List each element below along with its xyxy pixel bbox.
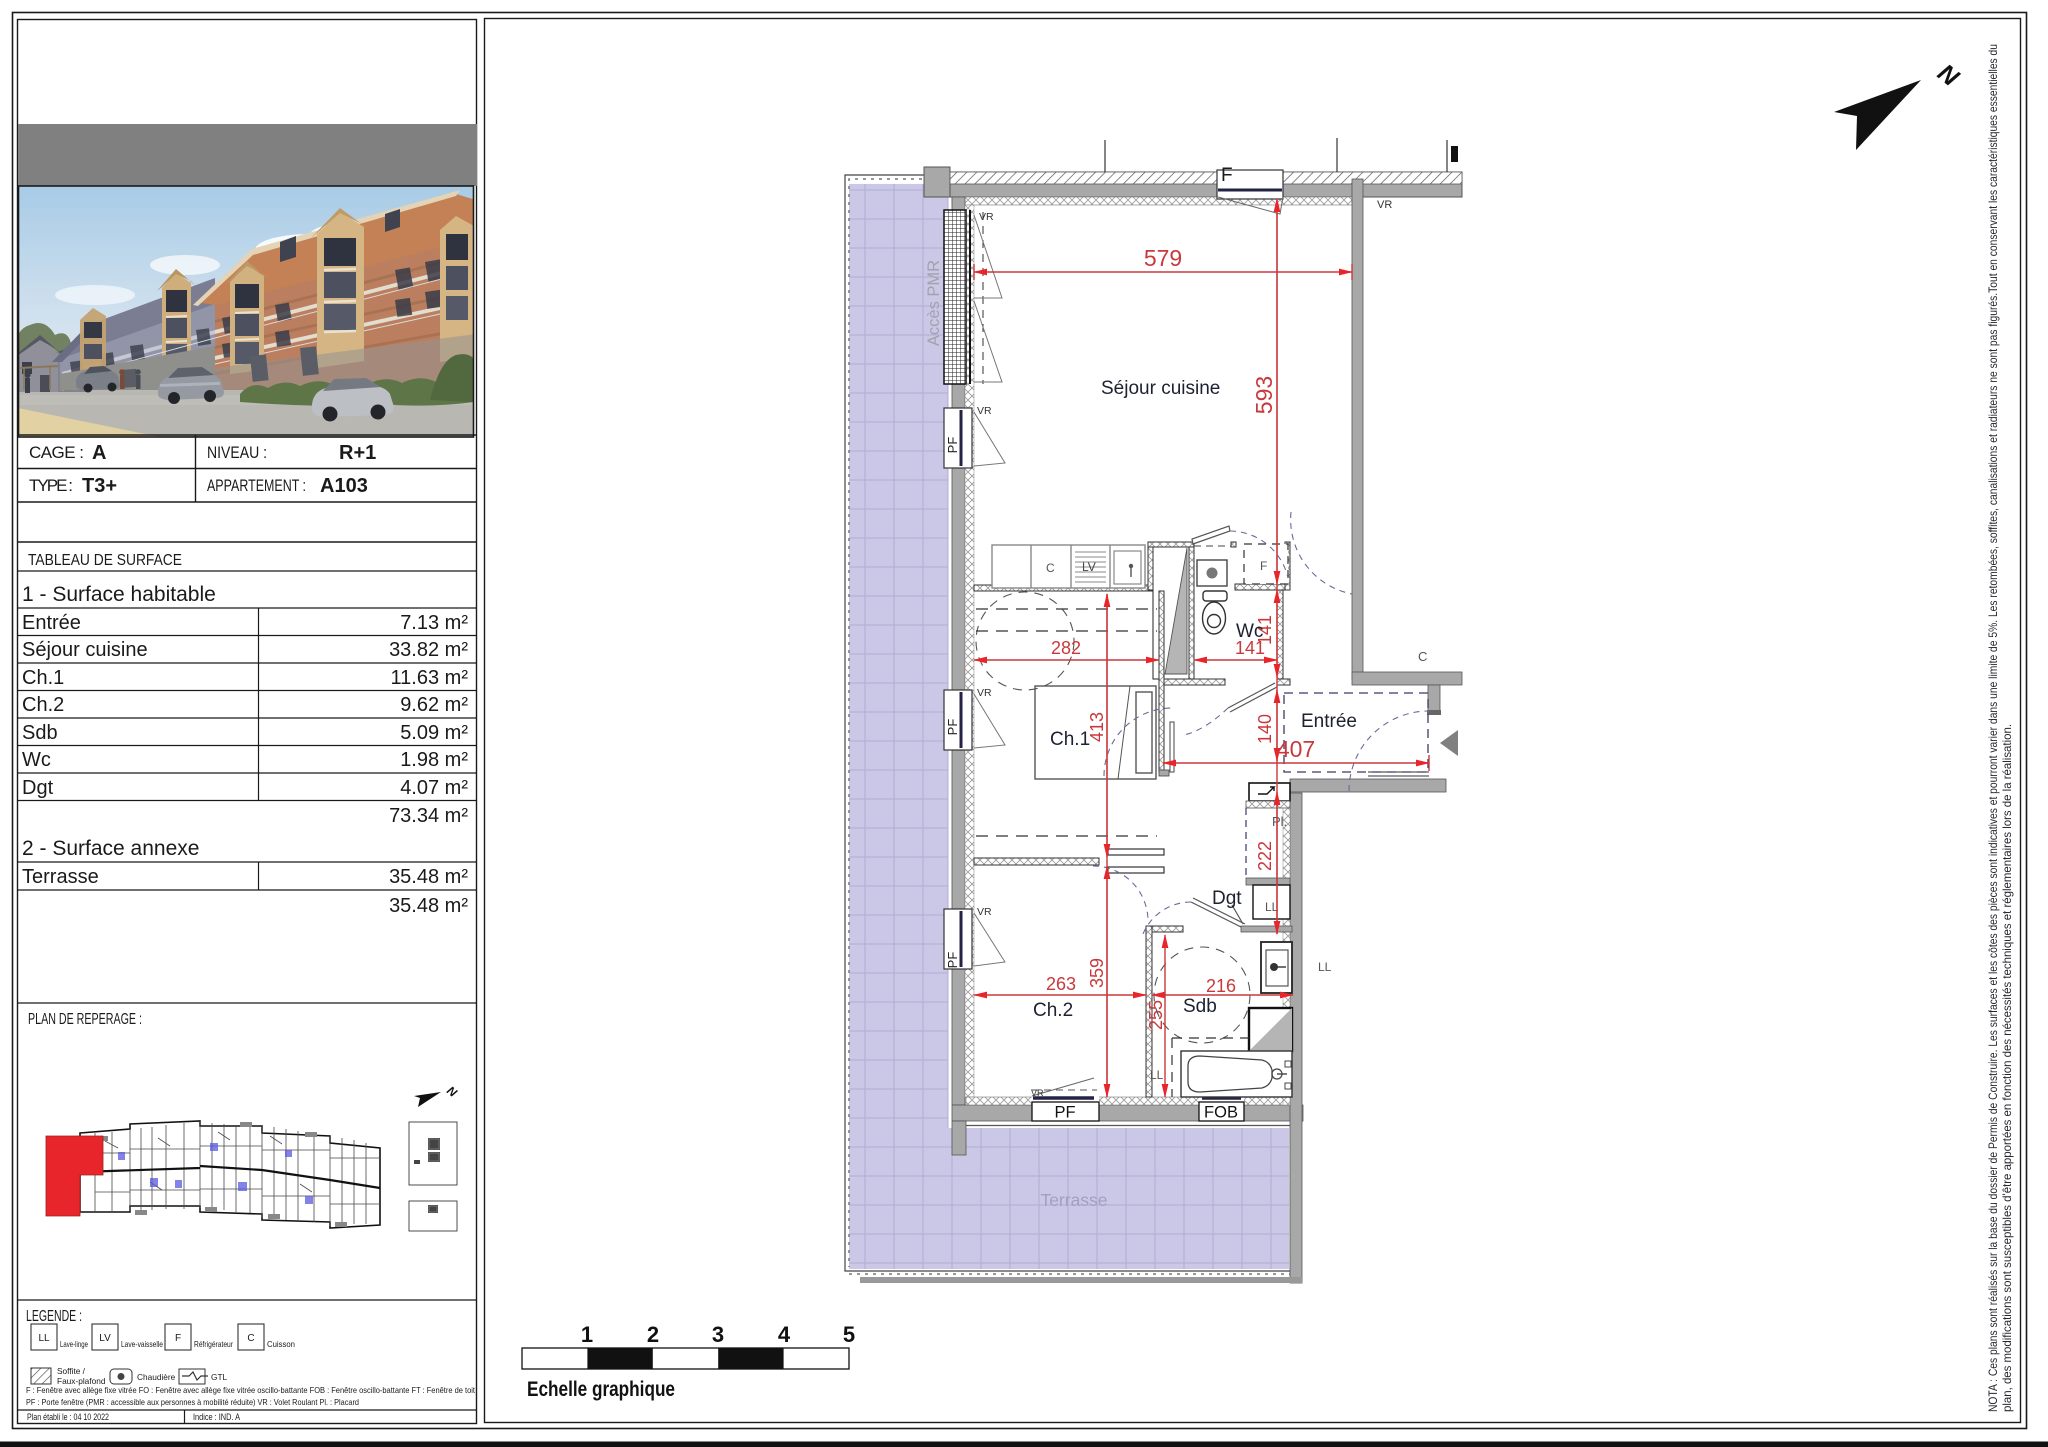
svg-text:Pl.: Pl.: [1272, 814, 1287, 829]
svg-text:plan, des modifications sont s: plan, des modifications sont susceptible…: [2000, 724, 2014, 1412]
svg-text:LL: LL: [38, 1333, 50, 1344]
svg-text:F: F: [175, 1333, 181, 1344]
svg-text:NIVEAU :: NIVEAU :: [207, 443, 267, 462]
svg-text:PF: PF: [945, 437, 960, 454]
svg-text:Sdb: Sdb: [1183, 996, 1217, 1017]
svg-text:C: C: [1418, 649, 1427, 664]
svg-text:PF: PF: [1054, 1104, 1075, 1122]
svg-text:3: 3: [712, 1322, 724, 1347]
svg-text:PF : Porte fenêtre (PMR : ac: PF : Porte fenêtre (PMR : accessible aux…: [26, 1397, 359, 1407]
svg-text:VR: VR: [977, 906, 992, 918]
svg-text:VR: VR: [979, 211, 994, 223]
svg-text:Chaudière: Chaudière: [137, 1372, 176, 1382]
svg-text:VR: VR: [1377, 199, 1392, 211]
svg-text:F: F: [1260, 559, 1267, 573]
svg-text:73.34 m²: 73.34 m²: [389, 805, 468, 827]
svg-text:222: 222: [1255, 841, 1275, 871]
svg-text:PLAN DE REPERAGE :: PLAN DE REPERAGE :: [28, 1011, 142, 1028]
svg-text:VR: VR: [977, 687, 992, 699]
svg-text:Séjour cuisine: Séjour cuisine: [22, 639, 148, 661]
svg-text:5.09 m²: 5.09 m²: [400, 722, 468, 744]
svg-text:Ch.2: Ch.2: [22, 694, 64, 716]
svg-text:7.13 m²: 7.13 m²: [400, 612, 468, 634]
svg-text:FOB: FOB: [1204, 1104, 1238, 1122]
svg-text:Séjour cuisine: Séjour cuisine: [1101, 378, 1220, 399]
svg-text:35.48 m²: 35.48 m²: [389, 866, 468, 888]
svg-text:PF: PF: [945, 952, 960, 969]
svg-text:Lave-linge: Lave-linge: [60, 1339, 88, 1349]
svg-text:2 - Surface annexe: 2 - Surface annexe: [22, 837, 199, 860]
svg-text:F: F: [1221, 165, 1233, 186]
svg-text:Echelle graphique: Echelle graphique: [527, 1378, 675, 1401]
svg-text:A103: A103: [320, 475, 368, 497]
svg-text:PF: PF: [945, 719, 960, 736]
svg-text:N: N: [1932, 59, 1964, 93]
svg-text:Sdb: Sdb: [22, 722, 58, 744]
svg-text:140: 140: [1255, 714, 1275, 744]
svg-text:Wc: Wc: [1236, 621, 1263, 642]
svg-text:APPARTEMENT :: APPARTEMENT :: [207, 476, 306, 495]
svg-text:1 - Surface habitable: 1 - Surface habitable: [22, 583, 216, 606]
svg-text:4: 4: [778, 1322, 791, 1347]
svg-text:R+1: R+1: [339, 442, 376, 464]
svg-text:Soffite /: Soffite /: [57, 1366, 86, 1376]
svg-text:Réfrigérateur: Réfrigérateur: [194, 1339, 233, 1349]
svg-text:5: 5: [843, 1322, 855, 1347]
svg-text:Terrasse: Terrasse: [22, 866, 99, 888]
svg-text:Wc: Wc: [22, 749, 51, 771]
svg-text:33.82 m²: 33.82 m²: [389, 639, 468, 661]
svg-text:F : Fenêtre avec allège fixe: F : Fenêtre avec allège fixe vitrée FO :…: [26, 1385, 476, 1395]
svg-text:Ch.2: Ch.2: [1033, 1000, 1073, 1021]
svg-text:Accès PMR: Accès PMR: [925, 260, 943, 346]
svg-text:Ch.1: Ch.1: [22, 667, 64, 689]
svg-text:Ch.1: Ch.1: [1050, 729, 1090, 750]
svg-text:282: 282: [1051, 638, 1081, 658]
svg-text:579: 579: [1144, 245, 1182, 271]
svg-text:GTL: GTL: [211, 1372, 228, 1382]
svg-text:Plan établi le : 04 10 2022: Plan établi le : 04 10 2022: [27, 1412, 109, 1423]
svg-text:Cuisson: Cuisson: [267, 1339, 295, 1349]
svg-text:LL: LL: [1150, 1068, 1164, 1082]
svg-text:407: 407: [1277, 736, 1315, 762]
svg-text:Dgt: Dgt: [22, 777, 54, 799]
svg-text:9.62 m²: 9.62 m²: [400, 694, 468, 716]
svg-text:LEGENDE :: LEGENDE :: [26, 1308, 82, 1325]
svg-text:C: C: [1046, 561, 1055, 575]
svg-text:T3+: T3+: [82, 475, 117, 497]
svg-text:A: A: [92, 442, 106, 464]
svg-text:LV: LV: [1082, 560, 1096, 574]
svg-text:4.07 m²: 4.07 m²: [400, 777, 468, 799]
svg-text:Entrée: Entrée: [22, 612, 81, 634]
svg-text:Terrasse: Terrasse: [1040, 1190, 1107, 1210]
svg-text:C: C: [247, 1333, 254, 1344]
svg-text:TYPE :: TYPE :: [29, 476, 73, 495]
svg-text:CAGE :: CAGE :: [29, 443, 84, 462]
svg-text:2: 2: [647, 1322, 659, 1347]
svg-text:NOTA : Ces plans sont réalisés: NOTA : Ces plans sont réalisés sur la ba…: [1986, 44, 2000, 1412]
svg-text:255: 255: [1146, 1000, 1166, 1030]
svg-text:TABLEAU DE SURFACE: TABLEAU DE SURFACE: [28, 552, 182, 569]
svg-text:VR: VR: [1031, 1088, 1044, 1098]
svg-text:Lave-vaisselle: Lave-vaisselle: [121, 1339, 163, 1349]
svg-text:216: 216: [1206, 976, 1236, 996]
svg-text:VR: VR: [977, 405, 992, 417]
svg-text:35.48 m²: 35.48 m²: [389, 895, 468, 917]
svg-text:593: 593: [1251, 376, 1277, 414]
svg-text:1: 1: [581, 1322, 593, 1347]
svg-text:Indice : IND. A: Indice : IND. A: [193, 1412, 241, 1423]
svg-text:1.98 m²: 1.98 m²: [400, 749, 468, 771]
svg-text:LL: LL: [1318, 960, 1332, 974]
svg-text:359: 359: [1087, 958, 1107, 988]
svg-text:LV: LV: [99, 1333, 111, 1344]
svg-text:N: N: [444, 1083, 460, 1100]
svg-text:Dgt: Dgt: [1212, 888, 1242, 909]
svg-text:Entrée: Entrée: [1301, 711, 1357, 732]
svg-text:263: 263: [1046, 974, 1076, 994]
svg-text:11.63 m²: 11.63 m²: [391, 667, 469, 689]
